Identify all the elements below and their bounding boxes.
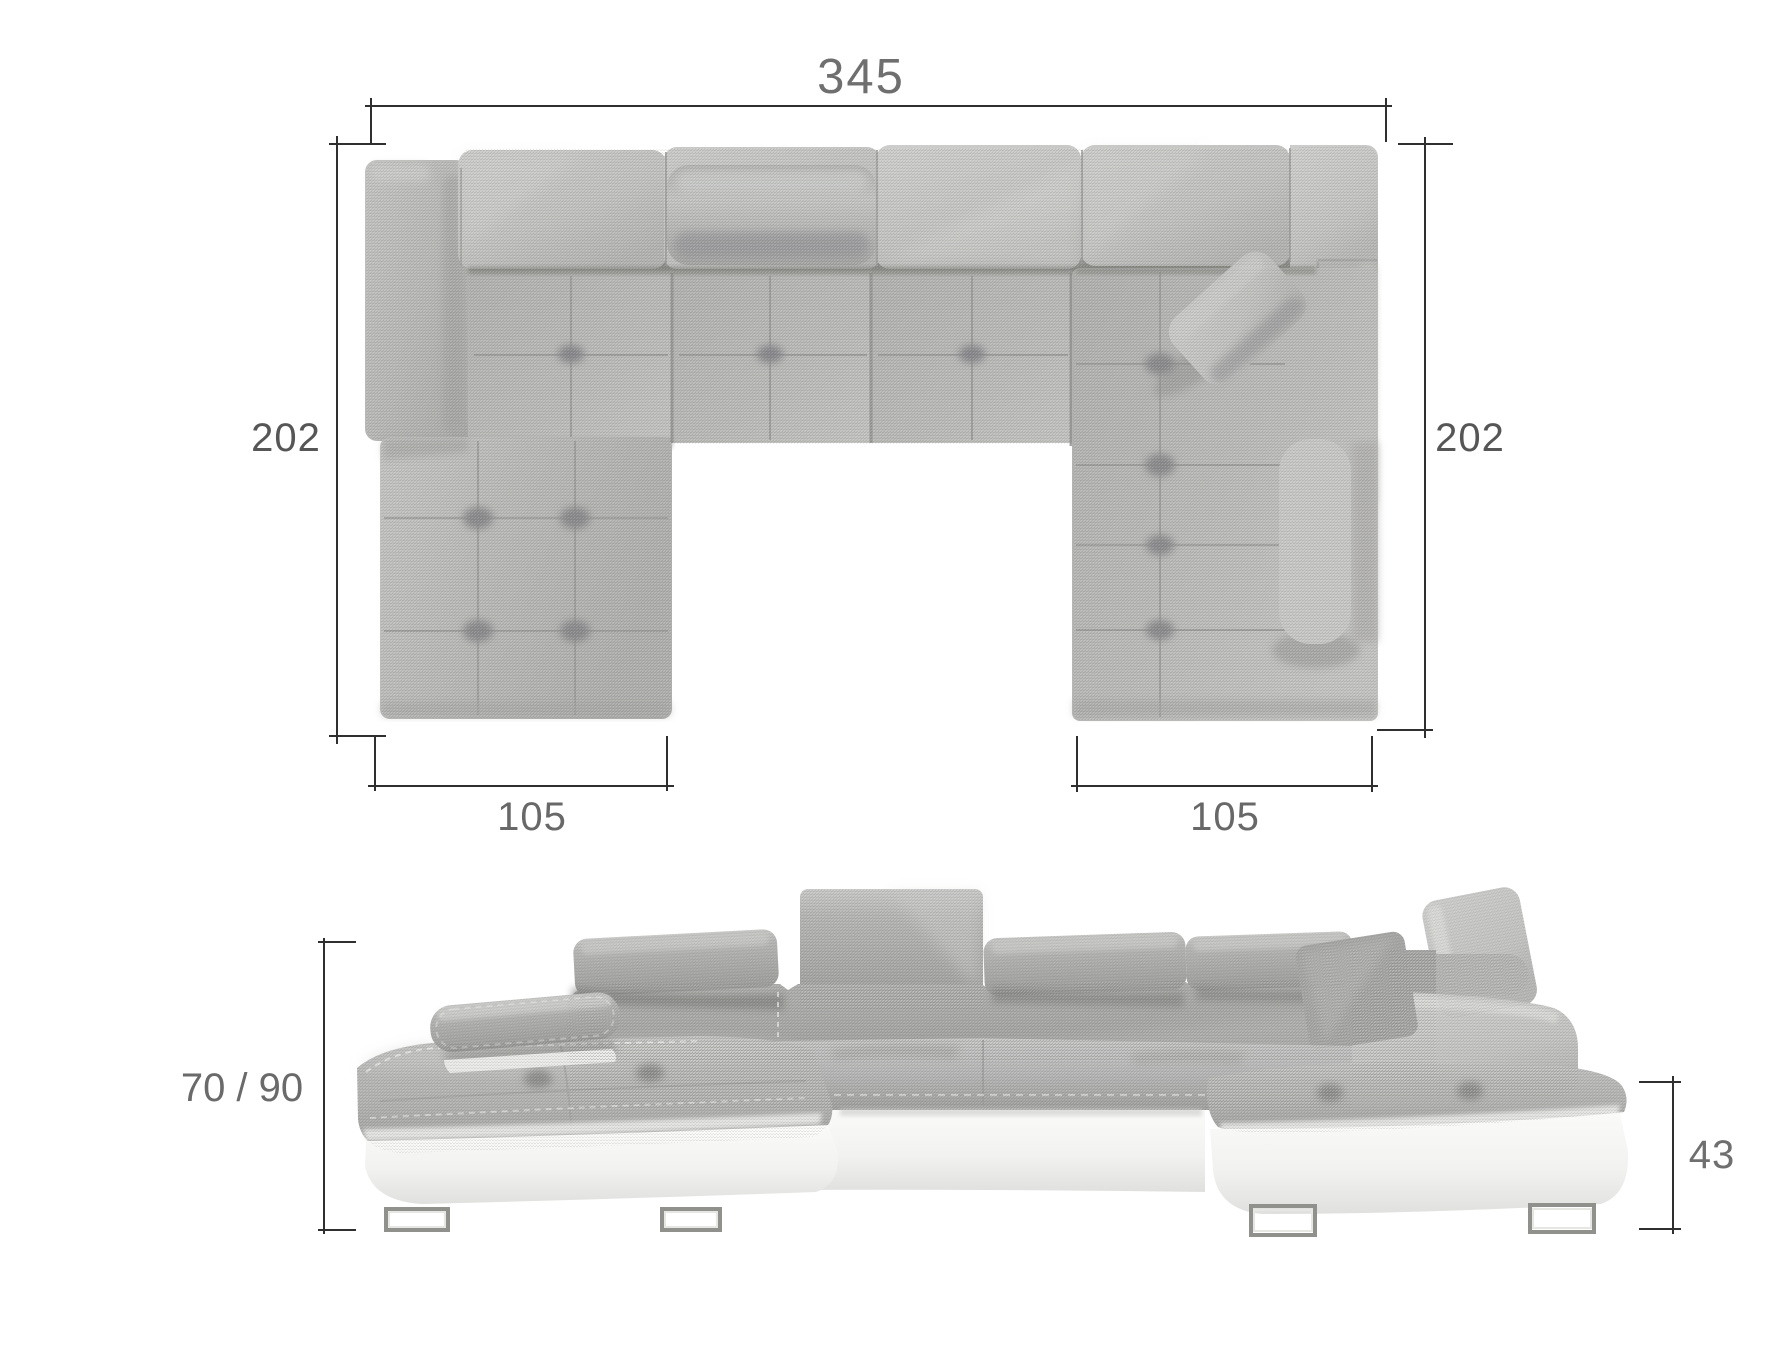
svg-text:105: 105 (1190, 795, 1260, 839)
svg-text:70 / 90: 70 / 90 (181, 1066, 303, 1110)
svg-text:202: 202 (1435, 416, 1505, 460)
svg-text:345: 345 (817, 50, 905, 104)
svg-text:202: 202 (251, 416, 321, 460)
svg-text:43: 43 (1689, 1133, 1736, 1177)
svg-text:105: 105 (497, 795, 567, 839)
